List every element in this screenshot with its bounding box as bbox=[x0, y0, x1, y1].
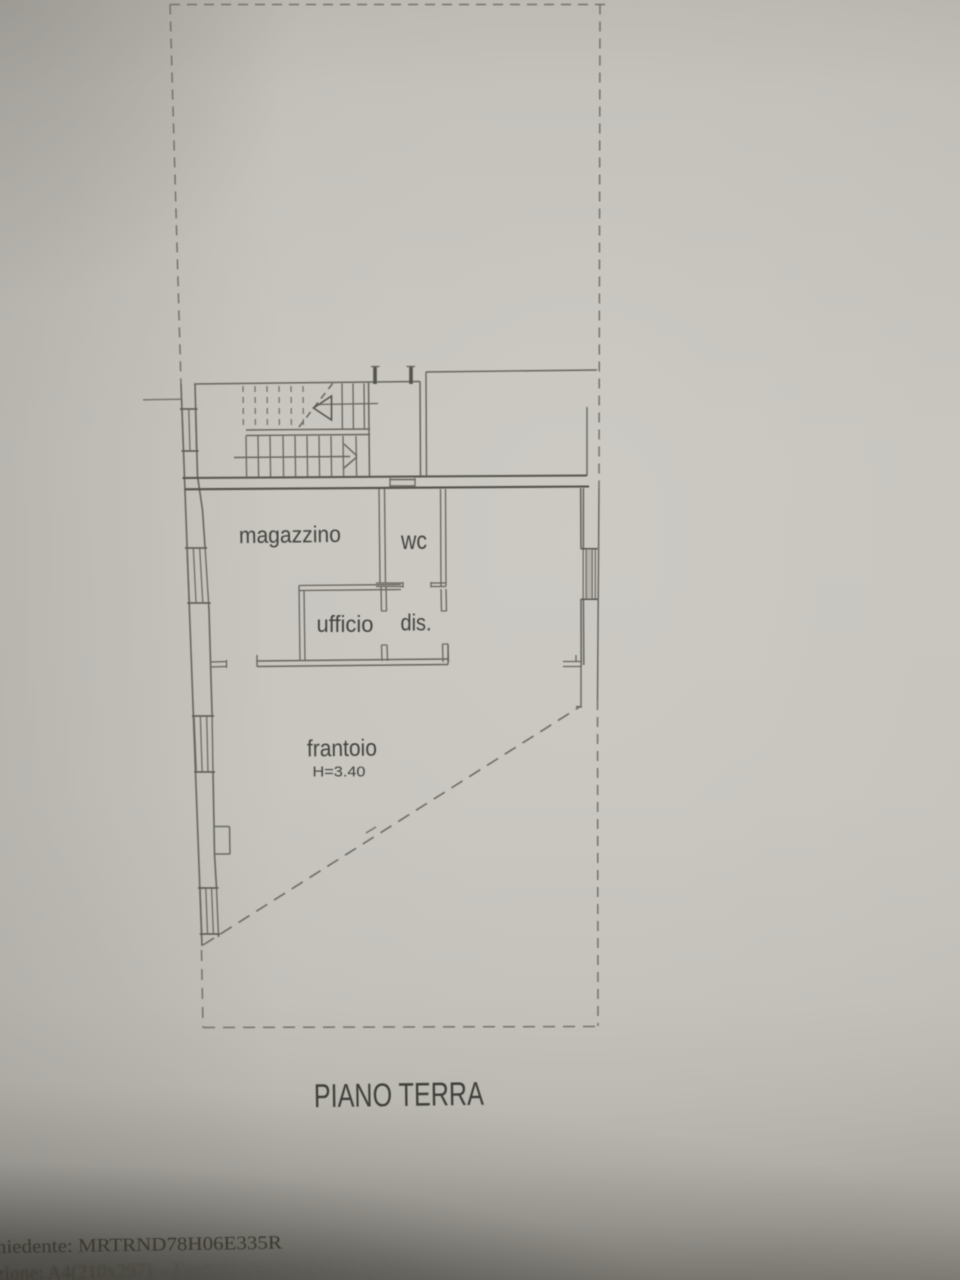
svg-text:PIANO TERRA: PIANO TERRA bbox=[314, 1075, 485, 1114]
svg-text:dis.: dis. bbox=[401, 610, 432, 636]
svg-text:wc: wc bbox=[400, 527, 427, 555]
svg-text:magazzino: magazzino bbox=[239, 521, 341, 548]
svg-text:H=3.40: H=3.40 bbox=[313, 765, 366, 781]
svg-text:ufficio: ufficio bbox=[317, 611, 374, 637]
svg-text:frantoio: frantoio bbox=[307, 735, 377, 762]
